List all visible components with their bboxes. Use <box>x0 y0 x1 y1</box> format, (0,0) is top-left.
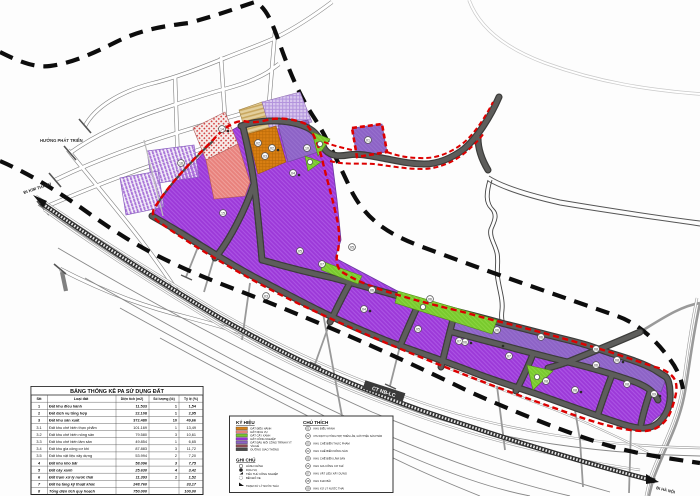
svg-text:08: 08 <box>625 383 629 387</box>
svg-text:3: 3 <box>175 433 177 437</box>
svg-text:10,61: 10,61 <box>186 433 196 437</box>
svg-text:02: 02 <box>256 142 260 146</box>
svg-text:7,20: 7,20 <box>189 454 196 458</box>
svg-text:1: 1 <box>175 426 177 430</box>
svg-text:Đất khu kho bãi: Đất khu kho bãi <box>49 461 78 465</box>
svg-text:06: 06 <box>539 336 543 340</box>
svg-text:3.1: 3.1 <box>36 426 41 430</box>
svg-text:100,00: 100,00 <box>184 490 197 494</box>
svg-text:Đất khu chế biến thực phẩm: Đất khu chế biến thực phẩm <box>49 426 97 430</box>
svg-text:BẢNG THỐNG KÊ PA SỬ DỤNG ĐẤT: BẢNG THỐNG KÊ PA SỬ DỤNG ĐẤT <box>70 387 164 395</box>
svg-text:08: 08 <box>544 380 548 384</box>
svg-text:Số lượng (lô): Số lượng (lô) <box>153 397 174 401</box>
svg-text:08: 08 <box>573 389 577 393</box>
svg-text:33,17: 33,17 <box>186 483 196 487</box>
svg-text:CHÚ THÍCH: CHÚ THÍCH <box>303 418 329 425</box>
svg-text:09: 09 <box>652 393 656 397</box>
svg-text:01: 01 <box>366 139 370 143</box>
svg-text:2: 2 <box>175 454 177 458</box>
svg-text:3.3: 3.3 <box>36 440 41 444</box>
svg-text:3: 3 <box>38 419 40 423</box>
svg-text:1: 1 <box>175 405 177 409</box>
svg-text:Đất dịch vụ tổng hợp: Đất dịch vụ tổng hợp <box>49 412 88 416</box>
svg-text:06: 06 <box>428 298 432 302</box>
svg-text:49,66: 49,66 <box>186 419 196 423</box>
svg-text:11.393: 11.393 <box>136 476 148 480</box>
svg-text:DỊCH VỤ: DỊCH VỤ <box>246 468 257 472</box>
svg-text:06: 06 <box>370 289 374 293</box>
svg-text:750.000: 750.000 <box>133 490 148 494</box>
svg-text:6,65: 6,65 <box>189 440 196 444</box>
svg-text:Đất khu điều hành: Đất khu điều hành <box>49 405 83 409</box>
svg-text:Đất khu gia công cơ khí: Đất khu gia công cơ khí <box>49 447 90 451</box>
svg-text:11,72: 11,72 <box>187 447 196 451</box>
svg-text:04: 04 <box>291 172 295 176</box>
svg-text:05: 05 <box>416 328 420 332</box>
svg-text:02: 02 <box>270 147 274 151</box>
svg-text:49.854: 49.854 <box>135 440 147 444</box>
svg-text:KHU DỊCH VỤ TỔNG HỢP, TRIỂN LÃ: KHU DỊCH VỤ TỔNG HỢP, TRIỂN LÃM, GIỚI TH… <box>314 435 383 438</box>
svg-text:08: 08 <box>594 348 598 352</box>
svg-text:25.630: 25.630 <box>134 468 148 472</box>
svg-text:03: 03 <box>264 295 268 299</box>
svg-text:Đất cây xanh: Đất cây xanh <box>49 468 73 472</box>
svg-text:Đất khu vật liệu xây dựng: Đất khu vật liệu xây dựng <box>49 454 92 458</box>
svg-text:03: 03 <box>263 155 267 159</box>
svg-text:53.994: 53.994 <box>135 454 147 458</box>
svg-text:1: 1 <box>175 476 177 480</box>
svg-text:Đất khu sản xuất: Đất khu sản xuất <box>49 419 80 423</box>
svg-text:Loại đất: Loại đất <box>74 397 89 401</box>
svg-text:07: 07 <box>457 340 461 344</box>
svg-text:372.480: 372.480 <box>133 419 147 423</box>
svg-text:04: 04 <box>362 308 366 312</box>
svg-text:3: 3 <box>175 447 177 451</box>
svg-text:GHI CHÚ: GHI CHÚ <box>236 457 256 463</box>
svg-text:3.5: 3.5 <box>36 454 41 458</box>
svg-text:1: 1 <box>38 405 40 409</box>
svg-text:Đất khu chế biến nông sản: Đất khu chế biến nông sản <box>49 433 94 437</box>
svg-text:1: 1 <box>175 412 177 416</box>
svg-text:10: 10 <box>305 147 309 151</box>
svg-text:HÀNH CHÍNH: HÀNH CHÍNH <box>246 464 263 468</box>
svg-text:13,49: 13,49 <box>186 426 196 430</box>
svg-text:08: 08 <box>615 359 619 363</box>
svg-text:2,95: 2,95 <box>189 412 196 416</box>
svg-text:06: 06 <box>594 364 598 368</box>
svg-text:1,52: 1,52 <box>189 476 197 480</box>
svg-text:1: 1 <box>175 440 177 444</box>
svg-text:KÝ HIỆU: KÝ HIỆU <box>236 418 255 425</box>
svg-text:3.4: 3.4 <box>36 447 41 451</box>
svg-text:Tổng diện tích quy hoạch: Tổng diện tích quy hoạch <box>49 490 96 494</box>
svg-text:05: 05 <box>350 246 354 250</box>
svg-text:22.108: 22.108 <box>135 412 147 416</box>
svg-text:2: 2 <box>38 412 40 416</box>
svg-text:1,54: 1,54 <box>189 405 197 409</box>
svg-text:3,42: 3,42 <box>189 468 197 472</box>
svg-text:Đất trạm xử lý nước thải: Đất trạm xử lý nước thải <box>49 476 94 480</box>
svg-text:11.533: 11.533 <box>136 405 147 409</box>
svg-text:Tỷ lệ (%): Tỷ lệ (%) <box>184 397 198 401</box>
svg-text:06: 06 <box>463 341 467 345</box>
svg-text:58.096: 58.096 <box>135 461 148 465</box>
svg-text:3.2: 3.2 <box>36 433 41 437</box>
svg-text:7,75: 7,75 <box>189 461 197 465</box>
svg-text:Đất khu chế biến lâm sản: Đất khu chế biến lâm sản <box>49 440 92 444</box>
svg-text:Đất hạ tầng kỹ thuật khác: Đất hạ tầng kỹ thuật khác <box>49 483 96 487</box>
svg-text:14: 14 <box>220 128 224 132</box>
svg-text:101.169: 101.169 <box>133 426 147 430</box>
svg-text:06: 06 <box>495 329 499 333</box>
svg-text:05: 05 <box>298 250 302 254</box>
svg-text:10: 10 <box>173 419 177 423</box>
svg-text:16: 16 <box>179 162 183 166</box>
svg-text:79.580: 79.580 <box>135 433 147 437</box>
svg-text:HƯỚNG PHÁT TRIỂN: HƯỚNG PHÁT TRIỂN <box>40 138 83 143</box>
svg-text:ĐI HÀ NỘI: ĐI HÀ NỘI <box>656 485 676 494</box>
svg-text:Diện tích (m2): Diện tích (m2) <box>121 397 143 401</box>
svg-text:15: 15 <box>221 212 225 216</box>
svg-text:07: 07 <box>507 355 511 359</box>
svg-text:Stt: Stt <box>36 397 42 401</box>
svg-text:87.883: 87.883 <box>135 447 147 451</box>
svg-text:248.760: 248.760 <box>132 483 148 487</box>
svg-text:07: 07 <box>320 263 324 267</box>
svg-text:ĐẤT DỊCH VỤ: ĐẤT DỊCH VỤ <box>251 430 268 434</box>
svg-text:ĐẤT CÂY XANH: ĐẤT CÂY XANH <box>251 434 271 438</box>
